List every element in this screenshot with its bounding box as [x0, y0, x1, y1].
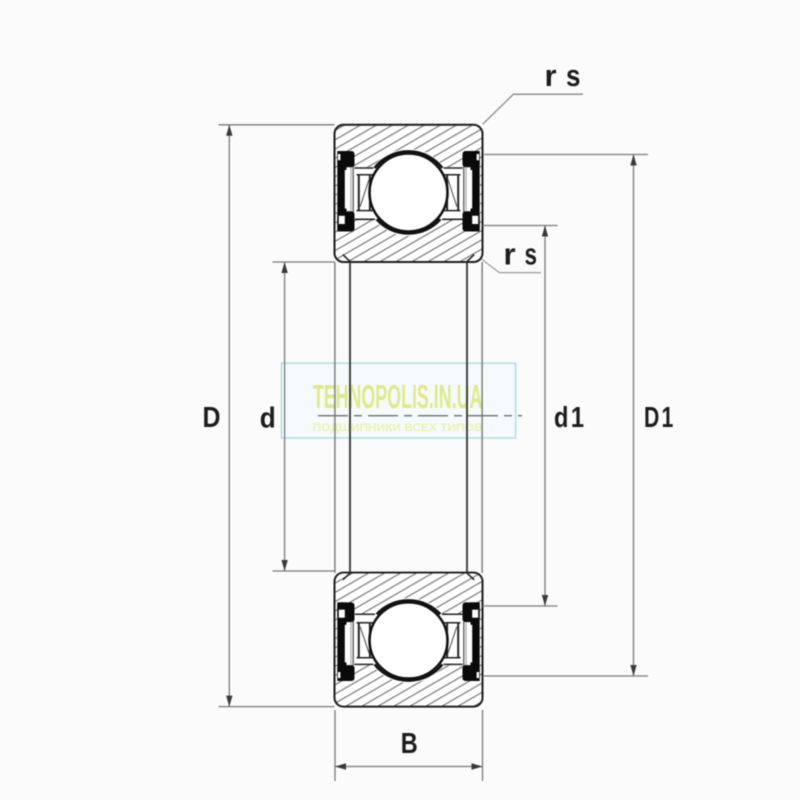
- svg-text:d1: d1: [554, 402, 587, 434]
- svg-text:ПОДШИПНИКИ ВСЕХ ТИПОВ: ПОДШИПНИКИ ВСЕХ ТИПОВ: [313, 422, 483, 434]
- svg-text:d: d: [260, 403, 276, 435]
- svg-text:D: D: [203, 402, 221, 434]
- svg-text:s: s: [566, 58, 581, 93]
- svg-text:B: B: [401, 728, 418, 760]
- svg-text:r: r: [545, 58, 557, 93]
- svg-text:D1: D1: [644, 402, 676, 434]
- svg-text:TEHNOPOLIS.IN.UA: TEHNOPOLIS.IN.UA: [313, 378, 483, 415]
- svg-text:r: r: [504, 237, 516, 272]
- svg-text:s: s: [525, 237, 538, 272]
